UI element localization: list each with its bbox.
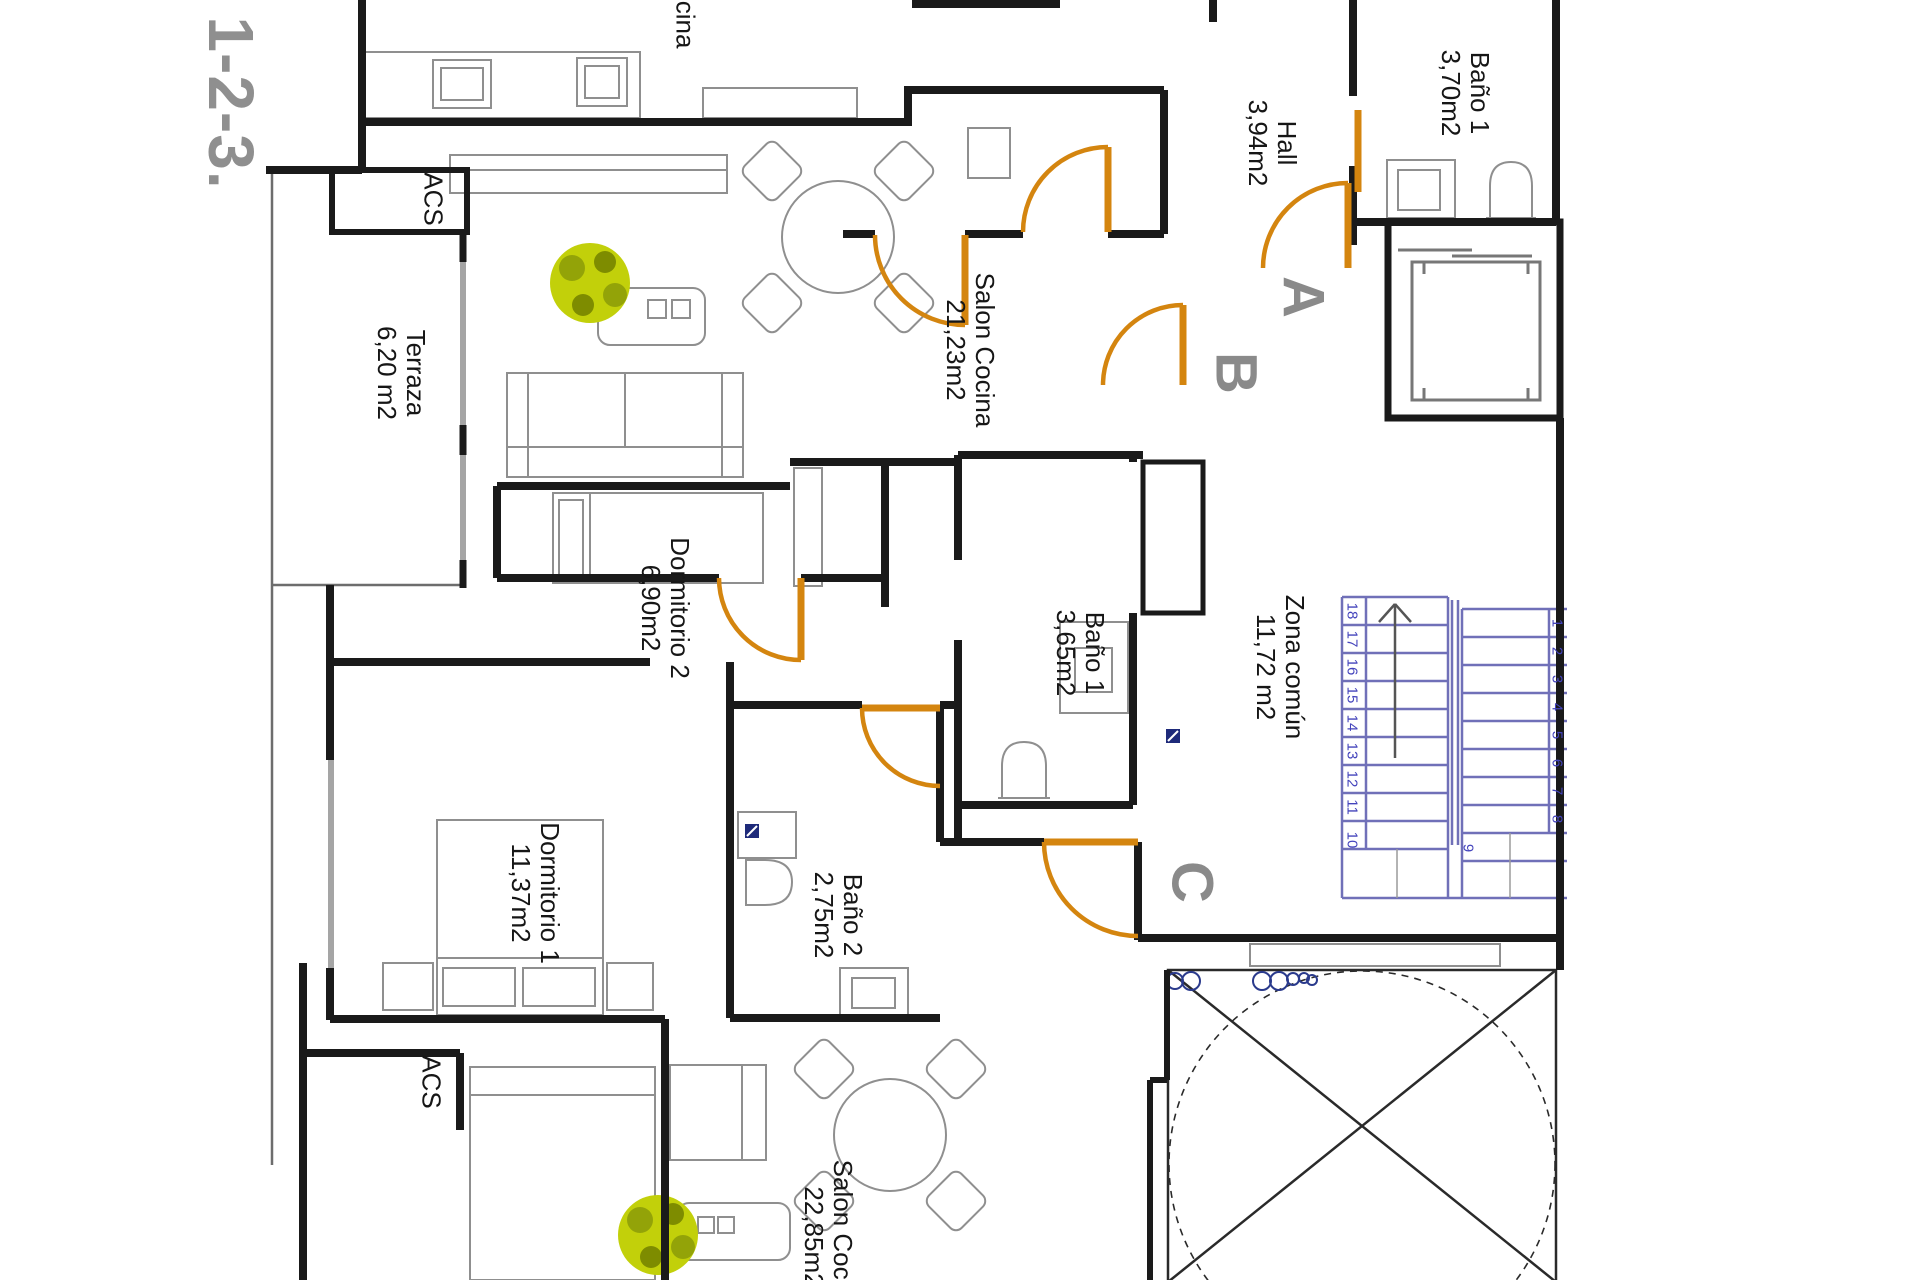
stair-number: 15 — [1344, 687, 1361, 704]
courtyard-cross — [1168, 970, 1556, 1280]
room-area: 11,37m2 — [506, 843, 535, 942]
floorplan-drawing — [0, 0, 1920, 1280]
elevator-car — [1398, 250, 1540, 400]
stair-number: 17 — [1344, 631, 1361, 648]
room-name: Hall — [1272, 121, 1301, 166]
room-area: 11,72 m2 — [1251, 614, 1280, 720]
sheet-title: 1-2-3. — [194, 16, 268, 189]
room-name: Cocina — [670, 0, 699, 48]
stair-number: 3 — [1549, 675, 1566, 683]
stair-number: 2 — [1549, 647, 1566, 655]
room-label-acs-bottom: ACS — [416, 1055, 445, 1108]
room-area: 3,94m2 — [1243, 100, 1272, 187]
room-label-salon-bottom: Salon Cocina 22,85m2 — [799, 1160, 857, 1280]
floorplan-page: 1-2-3. Cocina Salon Cocina 21,23m2 Terra… — [0, 0, 1920, 1280]
room-area: 6,20 m2 — [372, 326, 401, 420]
room-label-dormitorio1: Dormitorio 1 11,37m2 — [506, 822, 564, 964]
room-area: 3,65m2 — [1051, 610, 1080, 697]
stair-number: 11 — [1344, 799, 1361, 815]
room-area: 2,75m2 — [809, 872, 838, 959]
stair-number: 7 — [1549, 787, 1566, 795]
room-name: Zona común — [1280, 595, 1309, 740]
room-name: Baño 1 — [1465, 52, 1494, 134]
stair-number: 18 — [1344, 603, 1361, 620]
stair-number: 8 — [1549, 815, 1566, 823]
room-label-salon-cocina: Salon Cocina 21,23m2 — [941, 273, 999, 428]
room-label-bano1-mid: Baño 1 3,65m2 — [1051, 610, 1109, 697]
room-area: 22,85m2 — [799, 1186, 828, 1280]
room-area: 3,70m2 — [1436, 50, 1465, 137]
room-area: 21,23m2 — [941, 299, 970, 400]
room-label-cocina-top: Cocina — [670, 0, 699, 48]
room-name: Dormitorio 2 — [665, 537, 694, 679]
unit-letter-c: C — [1159, 861, 1226, 903]
room-label-terraza: Terraza 6,20 m2 — [372, 326, 430, 420]
unit-letter-a: A — [1270, 276, 1337, 318]
stair-number: 16 — [1344, 659, 1361, 676]
room-name: Baño 2 — [838, 874, 867, 956]
stair-number: 5 — [1549, 731, 1566, 739]
room-label-bano2: Baño 2 2,75m2 — [809, 872, 867, 959]
stair-number: 9 — [1460, 844, 1477, 852]
room-label-bano1-top: Baño 1 3,70m2 — [1436, 50, 1494, 137]
room-label-zona-comun: Zona común 11,72 m2 — [1251, 595, 1309, 740]
room-name: Baño 1 — [1080, 612, 1109, 694]
staircase — [1342, 597, 1567, 898]
stair-number: 12 — [1344, 771, 1361, 788]
room-area: 6,90m2 — [636, 565, 665, 652]
stair-number: 4 — [1549, 703, 1566, 711]
stair-number: 14 — [1344, 715, 1361, 732]
room-name: ACS — [418, 172, 447, 225]
stair-number: 10 — [1344, 832, 1361, 849]
room-name: ACS — [416, 1055, 445, 1108]
stair-landing-lines — [1397, 833, 1510, 898]
room-label-dormitorio2: Dormitorio 2 6,90m2 — [636, 537, 694, 679]
room-name: Salon Cocina — [970, 273, 999, 428]
drain-icon — [745, 729, 1180, 838]
stair-number: 13 — [1344, 743, 1361, 760]
unit-letter-b: B — [1203, 352, 1270, 394]
stair-number: 6 — [1549, 759, 1566, 767]
room-label-acs-top: ACS — [418, 172, 447, 225]
room-name: Terraza — [401, 330, 430, 417]
room-name: Salon Cocina — [828, 1160, 857, 1280]
room-label-hall: Hall 3,94m2 — [1243, 100, 1301, 187]
stair-number: 1 — [1549, 619, 1566, 627]
room-name: Dormitorio 1 — [535, 822, 564, 964]
